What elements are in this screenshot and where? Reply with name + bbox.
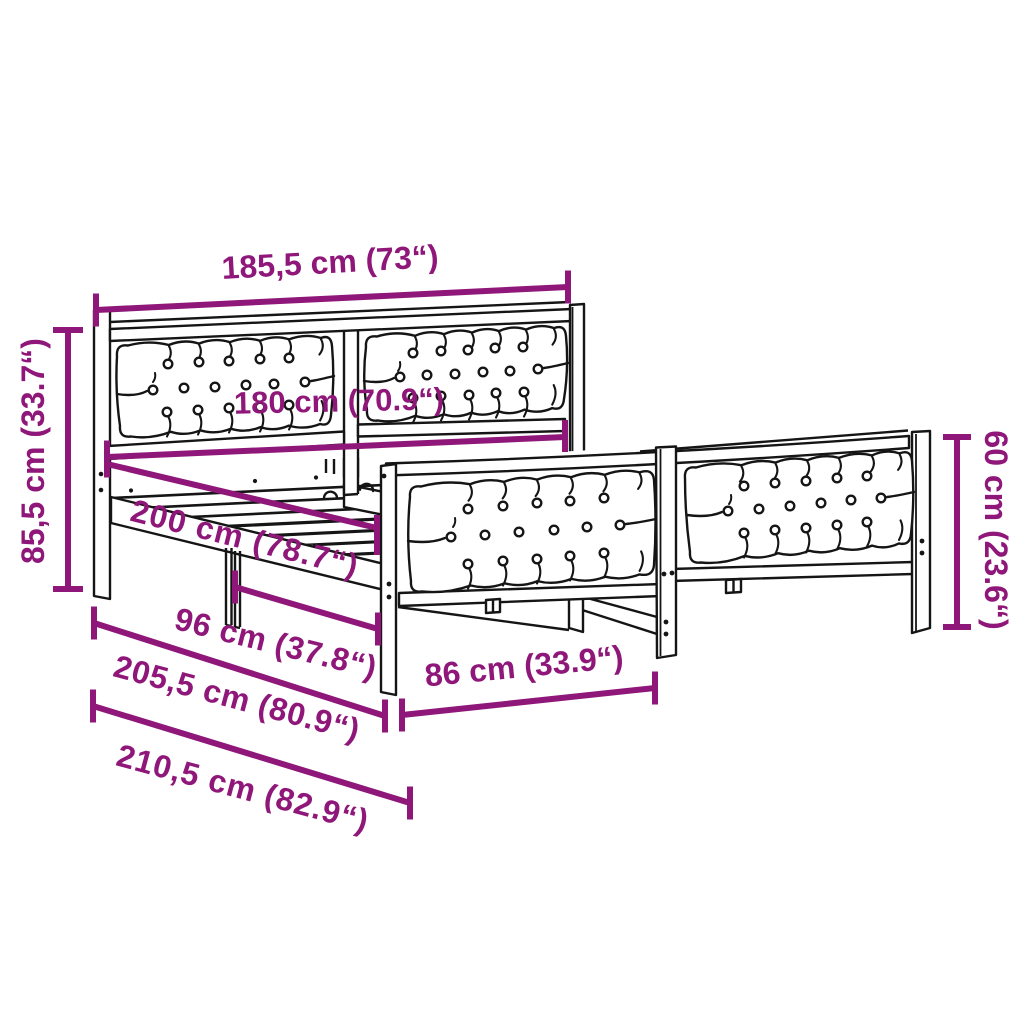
svg-text:180 cm (70.9“): 180 cm (70.9“) [234, 381, 445, 420]
svg-text:60 cm (23.6“): 60 cm (23.6“) [978, 430, 1014, 629]
svg-text:85,5 cm (33.7“): 85,5 cm (33.7“) [15, 338, 51, 564]
